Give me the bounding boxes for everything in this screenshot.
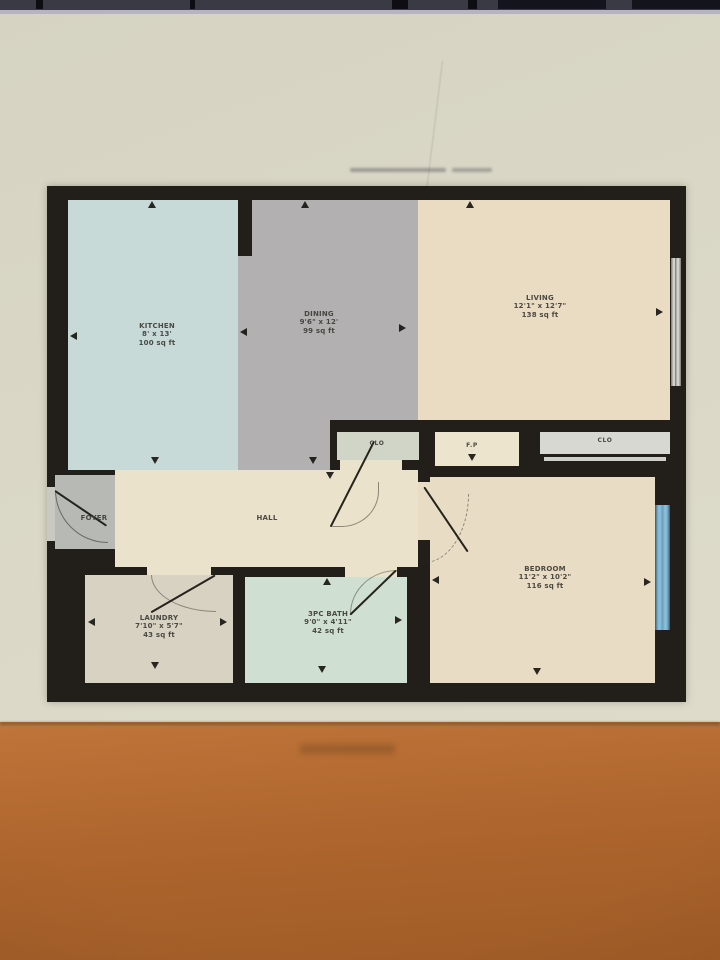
bezel-mark [468,0,477,9]
room-area: 42 sq ft [268,627,388,635]
illegible-text-smudge [350,168,446,172]
dimension-arrow-icon [301,201,309,208]
foyer-label: FOYER [64,514,124,522]
room-area: 43 sq ft [99,631,219,639]
room-area: 100 sq ft [97,339,217,347]
dimension-arrow-icon [309,457,317,464]
dimension-arrow-icon [151,457,159,464]
bezel-mark [36,0,43,9]
room-name: F.P [452,442,492,449]
room-name: KITCHEN [97,322,217,330]
closet-door-opening [340,460,402,470]
dimension-arrow-icon [151,662,159,669]
dimension-arrow-icon [323,578,331,585]
dimension-arrow-icon [148,201,156,208]
fireplace-label: F.P [452,442,492,449]
dimension-arrow-icon [399,324,406,332]
dimension-arrow-icon [220,618,227,626]
desk-reflection-smudge [300,744,395,754]
dimension-arrow-icon [533,668,541,675]
desk-edge-shadow [0,722,720,725]
room-dimensions: 7'10" x 5'7" [99,622,219,630]
dimension-arrow-icon [326,472,334,479]
bedroom-label: BEDROOM 11'2" x 10'2" 116 sq ft [485,565,605,590]
closet-right-label: CLO [575,437,635,444]
room-dining [238,256,330,470]
room-dimensions: 8' x 13' [97,330,217,338]
room-dining [330,256,418,420]
bezel-mark-gap [606,0,632,9]
room-dimensions: 12'1" x 12'7" [480,302,600,310]
bath-label: 3PC BATH 9'0" x 4'11" 42 sq ft [268,610,388,635]
room-area: 138 sq ft [480,311,600,319]
room-name: BEDROOM [485,565,605,573]
floorplan-canvas: KITCHEN 8' x 13' 100 sq ft DINING 9'6" x… [47,186,686,702]
dimension-arrow-icon [88,618,95,626]
bedroom-window [655,505,670,630]
bezel-mark [392,0,408,9]
dimension-arrow-icon [432,576,439,584]
room-name: HALL [237,514,297,522]
photo-of-screen: { "floorplan": { "title": "Apartment flo… [0,0,720,960]
room-area: 99 sq ft [259,327,379,335]
room-dining [252,200,418,256]
hall-label: HALL [237,514,297,522]
room-name: CLO [575,437,635,444]
dimension-arrow-icon [468,454,476,461]
room-area: 116 sq ft [485,582,605,590]
dining-label: DINING 9'6" x 12' 99 sq ft [259,310,379,335]
closet-left-label: CLO [347,440,407,447]
room-dimensions: 9'6" x 12' [259,318,379,326]
dimension-arrow-icon [395,616,402,624]
room-name: DINING [259,310,379,318]
room-dimensions: 11'2" x 10'2" [485,573,605,581]
dimension-arrow-icon [656,308,663,316]
dimension-arrow-icon [240,328,247,336]
room-name: FOYER [64,514,124,522]
dimension-arrow-icon [644,578,651,586]
illegible-text-smudge [452,168,492,172]
bezel-mark [190,0,195,9]
room-dimensions: 9'0" x 4'11" [268,618,388,626]
dimension-arrow-icon [70,332,77,340]
kitchen-label: KITCHEN 8' x 13' 100 sq ft [97,322,217,347]
dimension-arrow-icon [318,666,326,673]
desk-surface [0,722,720,960]
room-name: CLO [347,440,407,447]
room-name: LIVING [480,294,600,302]
room-name: LAUNDRY [99,614,219,622]
living-label: LIVING 12'1" x 12'7" 138 sq ft [480,294,600,319]
laundry-label: LAUNDRY 7'10" x 5'7" 43 sq ft [99,614,219,639]
dimension-arrow-icon [466,201,474,208]
laundry-door-opening [147,567,211,575]
closet-sliding-door [544,457,666,461]
room-name: 3PC BATH [268,610,388,618]
entry-door-opening [47,487,55,541]
living-window [671,258,681,386]
